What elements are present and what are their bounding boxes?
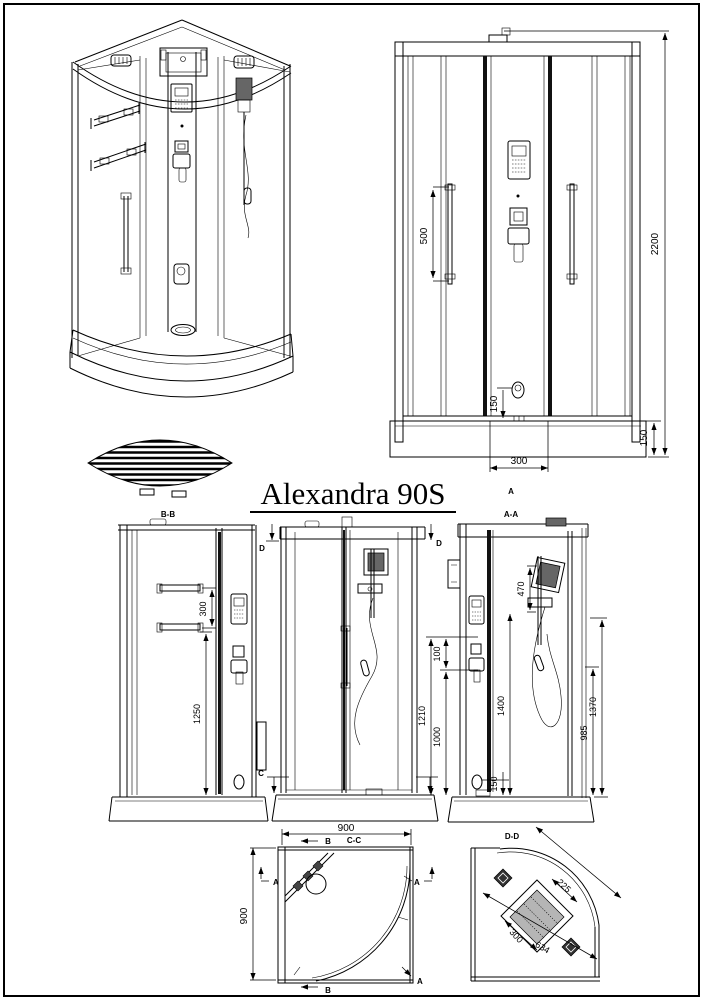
title-block: Alexandra 90S [250,476,456,512]
dim-mixer-1000: 1000 [432,727,442,747]
top-light-box [160,48,207,76]
control-panel [171,84,192,112]
steam-generator-box [448,560,460,588]
shower-tray [272,789,438,821]
section-marker-a: A [508,487,514,496]
ceiling-speaker [494,869,512,887]
control-panel [508,141,530,179]
dim-rail-1400: 1400 [496,696,506,716]
shower-tray [70,325,293,398]
corner-shelves [91,103,146,171]
view-label-bb: B-B [161,510,175,519]
section-marker-d-right: D [436,539,442,548]
section-marker-a-right: A [414,878,420,887]
view-label-dd: D-D [505,832,519,841]
dim-gap-100: 100 [432,646,442,661]
control-panel [469,596,484,624]
drain [306,874,326,894]
control-panel [231,594,247,624]
hand-shower [360,659,370,676]
shower-tray [109,797,268,821]
grab-handle [121,193,131,274]
section-marker-d-left: D [259,544,265,553]
dim-holder-470: 470 [516,581,526,596]
corner-jets [293,861,323,891]
drawing-sheet: Alexandra 90S [0,0,703,1000]
vent-grille-right [234,56,254,68]
shower-tray [390,421,646,457]
side-section-aa: A-A [417,510,608,822]
dim-width-900: 900 [338,823,355,834]
section-marker-b-top: B [325,837,331,846]
grab-bar-right [567,184,577,284]
dim-glass-985: 985 [579,725,589,740]
mixer-controls [508,208,529,262]
front-elevation-view: 500 2200 150 150 300 A [390,28,669,496]
grab-bar-left [445,184,455,284]
dim-depth-900: 900 [239,907,250,924]
dim-offset-225: 225 [555,877,573,895]
technical-drawing: Alexandra 90S [0,0,703,1000]
dim-drain-150: 150 [489,776,499,791]
isometric-view [70,20,293,397]
back-interior-view: D D C [258,517,442,821]
dim-tray-150: 150 [639,429,650,446]
dim-shelf-gap-300: 300 [198,601,208,616]
dim-panel-1210: 1210 [417,706,427,726]
side-view-bb: B-B 300 1250 [109,510,268,821]
floor-outlet [472,775,482,789]
dim-drain-150: 150 [489,395,500,412]
ceiling-plan-dd: D-D 634 300 225 [471,827,621,981]
tray-bottom-view [80,425,240,502]
steam-generator-box [257,722,266,770]
shelves [157,584,203,632]
view-label-aa: A-A [504,510,518,519]
shower-column [528,556,565,727]
steam-nozzle [181,125,184,128]
page-title: Alexandra 90S [260,476,445,511]
dim-shelf-height-1250: 1250 [192,704,202,724]
dim-diagonal-634: 634 [533,939,551,955]
dim-door-300: 300 [511,456,528,467]
floor-outlet [512,382,524,398]
shower-column [236,78,252,238]
plan-view-cc: C-C B 900 900 A A B A [239,823,432,995]
view-label-cc: C-C [347,836,361,845]
section-marker-c-left: C [258,769,264,778]
shower-column [355,549,388,745]
dim-height-2200: 2200 [650,232,661,255]
section-marker-b-bottom: B [325,986,331,995]
section-marker-a-corner: A [417,977,423,986]
section-marker-a-left: A [273,878,279,887]
mixer-controls [173,141,190,284]
floor-outlet [234,775,244,789]
hand-shower [533,654,544,671]
dim-rail-500: 500 [419,227,430,244]
